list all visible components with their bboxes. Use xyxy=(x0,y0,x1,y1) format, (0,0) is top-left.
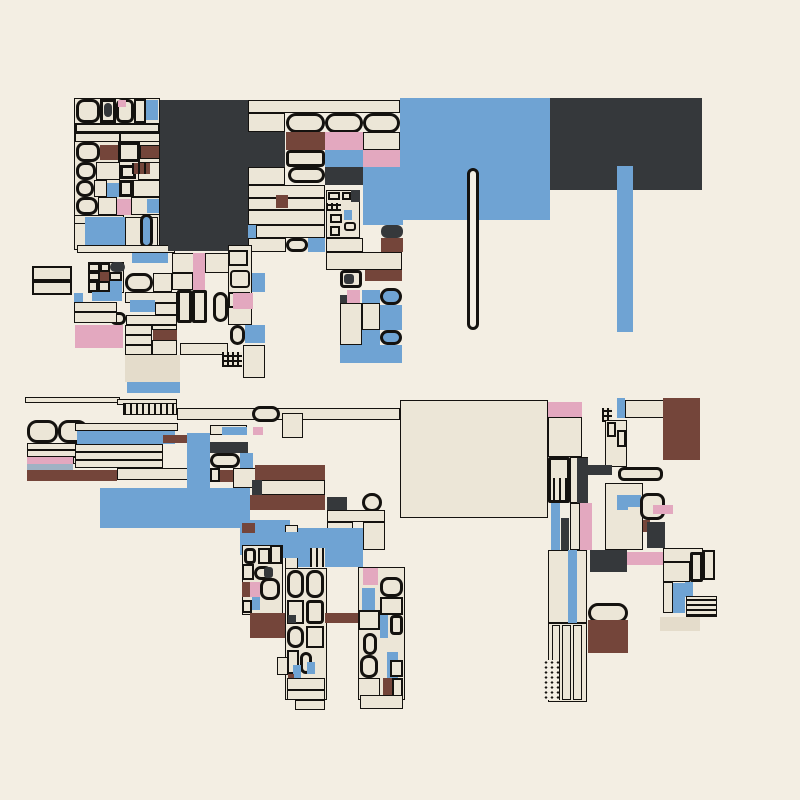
art-shape xyxy=(140,214,153,248)
art-shape xyxy=(248,113,285,132)
art-shape xyxy=(172,273,193,290)
art-shape xyxy=(573,625,582,700)
art-shape xyxy=(553,478,567,500)
art-shape xyxy=(358,610,380,630)
art-shape xyxy=(653,505,673,514)
art-shape xyxy=(94,180,107,197)
art-shape xyxy=(690,552,703,582)
art-shape xyxy=(286,113,325,133)
art-shape xyxy=(32,281,72,295)
art-shape xyxy=(155,303,177,315)
art-shape xyxy=(76,99,100,123)
art-shape xyxy=(340,345,402,363)
art-shape xyxy=(187,450,210,488)
art-shape xyxy=(276,195,288,208)
art-shape xyxy=(125,335,152,345)
art-shape xyxy=(306,626,324,648)
art-shape xyxy=(153,330,177,340)
art-shape xyxy=(548,402,582,417)
art-shape xyxy=(325,613,360,623)
art-shape xyxy=(74,302,117,312)
art-shape xyxy=(180,343,228,355)
art-shape xyxy=(340,303,362,345)
art-shape xyxy=(607,422,616,437)
art-shape xyxy=(248,150,285,167)
caption: Dreaming with Le Corbusier | opF5KtQVSS9… xyxy=(0,730,800,800)
art-shape xyxy=(230,270,250,288)
art-shape xyxy=(134,99,146,123)
art-shape xyxy=(192,290,207,323)
art-shape xyxy=(248,238,286,252)
art-shape xyxy=(673,583,685,613)
art-shape xyxy=(381,238,403,252)
art-shape xyxy=(147,199,159,213)
art-shape xyxy=(360,655,378,678)
art-shape xyxy=(119,180,133,197)
art-shape xyxy=(344,274,354,284)
art-shape xyxy=(132,163,150,174)
art-shape xyxy=(133,180,160,197)
art-shape xyxy=(307,662,315,674)
art-shape xyxy=(381,225,403,238)
art-shape xyxy=(250,613,288,638)
art-shape xyxy=(242,564,254,580)
art-shape xyxy=(168,245,235,251)
art-shape xyxy=(77,245,175,253)
art-shape xyxy=(27,470,117,481)
art-shape xyxy=(233,293,253,309)
art-shape xyxy=(88,272,100,281)
art-shape xyxy=(380,577,403,597)
art-shape xyxy=(380,288,402,305)
art-shape xyxy=(85,217,125,248)
art-shape xyxy=(362,330,380,345)
art-shape xyxy=(75,460,163,468)
art-shape xyxy=(617,398,625,418)
art-shape xyxy=(287,678,325,690)
art-shape xyxy=(363,633,377,655)
art-shape xyxy=(250,582,260,597)
art-shape xyxy=(325,167,363,185)
art-shape xyxy=(125,345,152,355)
art-shape xyxy=(75,452,163,460)
art-shape xyxy=(360,695,403,709)
art-shape xyxy=(344,222,356,231)
art-shape xyxy=(258,548,270,564)
art-shape xyxy=(663,562,690,582)
art-shape xyxy=(252,480,262,495)
art-shape xyxy=(365,270,402,281)
art-shape xyxy=(310,548,325,567)
art-shape xyxy=(76,142,100,162)
art-shape xyxy=(561,518,569,550)
art-shape xyxy=(125,325,152,335)
art-shape xyxy=(75,444,163,452)
art-shape xyxy=(570,503,580,550)
art-shape xyxy=(605,483,643,550)
art-shape xyxy=(210,468,220,482)
art-shape xyxy=(287,570,304,598)
art-shape xyxy=(77,431,175,444)
art-shape xyxy=(270,545,282,564)
art-shape xyxy=(117,199,131,215)
art-shape xyxy=(104,103,112,117)
art-shape xyxy=(98,197,117,215)
art-shape xyxy=(123,403,177,415)
art-shape xyxy=(467,168,479,330)
art-shape xyxy=(264,567,273,578)
art-shape xyxy=(110,262,125,272)
art-shape xyxy=(243,345,265,378)
art-shape xyxy=(647,522,665,548)
art-shape xyxy=(590,550,627,572)
art-shape xyxy=(75,325,123,348)
art-shape xyxy=(252,597,260,610)
art-shape xyxy=(256,225,325,238)
art-shape xyxy=(242,523,255,533)
art-shape xyxy=(325,113,363,133)
art-shape xyxy=(230,325,245,345)
art-shape xyxy=(125,355,180,382)
art-shape xyxy=(27,457,73,464)
art-shape xyxy=(286,132,325,150)
art-shape xyxy=(363,132,400,150)
art-shape xyxy=(160,100,248,248)
art-shape xyxy=(326,238,363,252)
art-shape xyxy=(380,597,403,615)
art-shape xyxy=(308,238,325,252)
art-shape xyxy=(110,281,122,292)
art-shape xyxy=(153,273,172,292)
art-shape xyxy=(118,142,140,162)
art-shape xyxy=(390,660,403,677)
art-shape xyxy=(76,162,96,180)
art-shape xyxy=(306,600,324,624)
art-shape xyxy=(240,453,253,468)
art-shape xyxy=(330,214,342,223)
art-shape xyxy=(260,578,280,600)
art-shape xyxy=(177,290,192,323)
art-shape xyxy=(244,548,256,564)
art-shape xyxy=(252,480,325,495)
art-shape xyxy=(325,132,363,150)
art-shape xyxy=(74,312,117,323)
art-shape xyxy=(25,397,120,403)
art-shape xyxy=(286,238,308,252)
art-shape xyxy=(98,281,110,292)
art-shape xyxy=(326,252,402,270)
artwork-canvas: Dreaming with Le Corbusier | opF5KtQVSS9… xyxy=(0,0,800,800)
art-shape xyxy=(32,266,72,281)
art-shape xyxy=(96,162,120,180)
art-shape xyxy=(362,303,380,330)
art-shape xyxy=(282,413,303,438)
art-shape xyxy=(88,281,98,292)
art-shape xyxy=(248,100,400,113)
art-shape xyxy=(88,263,100,272)
art-shape xyxy=(703,550,715,580)
art-shape xyxy=(255,465,325,480)
art-shape xyxy=(363,167,403,225)
art-shape xyxy=(220,470,233,482)
art-shape xyxy=(75,123,160,133)
art-shape xyxy=(125,273,153,292)
art-shape xyxy=(298,528,363,567)
art-shape xyxy=(306,570,324,598)
art-shape xyxy=(252,273,265,292)
art-shape xyxy=(193,253,205,290)
art-shape xyxy=(363,113,400,133)
art-shape xyxy=(287,690,325,700)
art-shape xyxy=(363,522,385,550)
art-shape xyxy=(627,495,641,507)
art-shape xyxy=(685,582,693,597)
art-shape xyxy=(380,615,388,638)
art-shape xyxy=(248,225,256,238)
art-shape xyxy=(543,660,559,700)
art-shape xyxy=(222,427,247,435)
art-shape xyxy=(347,290,360,303)
art-shape xyxy=(75,133,120,142)
art-shape xyxy=(248,210,325,225)
art-shape xyxy=(344,210,352,220)
art-shape xyxy=(625,400,667,418)
art-shape xyxy=(213,292,228,322)
art-shape xyxy=(100,272,109,281)
art-shape xyxy=(362,588,375,610)
art-shape xyxy=(588,620,628,653)
art-shape xyxy=(248,167,285,185)
art-shape xyxy=(118,100,126,107)
art-shape xyxy=(74,293,83,302)
art-shape xyxy=(663,398,700,460)
art-shape xyxy=(325,150,363,167)
art-shape xyxy=(27,420,58,443)
art-shape xyxy=(187,433,210,450)
art-shape xyxy=(363,568,378,585)
art-shape xyxy=(75,423,178,431)
art-shape xyxy=(132,253,168,263)
art-shape xyxy=(287,626,304,648)
art-shape xyxy=(363,150,400,167)
art-shape xyxy=(400,400,548,518)
art-shape xyxy=(120,133,160,142)
art-shape xyxy=(618,467,663,481)
art-shape xyxy=(380,330,402,345)
art-shape xyxy=(146,100,158,120)
art-shape xyxy=(380,305,402,330)
art-shape xyxy=(663,582,673,613)
art-shape xyxy=(617,430,626,447)
art-shape xyxy=(210,453,240,468)
art-shape xyxy=(222,352,242,367)
art-shape xyxy=(107,183,119,197)
art-shape xyxy=(362,290,380,303)
art-shape xyxy=(342,192,351,200)
art-shape xyxy=(295,700,325,710)
art-shape xyxy=(250,495,325,510)
art-shape xyxy=(92,292,122,301)
art-shape xyxy=(130,300,155,312)
art-shape xyxy=(253,427,263,435)
art-shape xyxy=(100,263,110,272)
art-shape xyxy=(152,340,177,355)
art-shape xyxy=(245,325,265,343)
art-shape xyxy=(126,315,177,325)
art-shape xyxy=(326,203,341,211)
art-shape xyxy=(286,150,325,167)
art-shape xyxy=(330,226,340,236)
art-shape xyxy=(288,615,296,623)
art-shape xyxy=(580,503,592,550)
art-shape xyxy=(100,145,118,160)
art-shape xyxy=(252,406,280,422)
art-shape xyxy=(617,166,633,332)
art-shape xyxy=(551,503,560,550)
art-shape xyxy=(76,180,94,197)
art-shape xyxy=(109,272,122,281)
art-shape xyxy=(327,510,385,522)
art-shape xyxy=(548,417,582,457)
art-shape xyxy=(127,382,180,393)
art-shape xyxy=(293,665,301,678)
art-shape xyxy=(288,167,325,183)
art-shape xyxy=(248,132,285,150)
art-shape xyxy=(228,250,248,266)
art-shape xyxy=(140,145,160,159)
art-shape xyxy=(686,596,717,617)
art-shape xyxy=(117,468,193,480)
art-shape xyxy=(242,582,250,597)
generative-composition xyxy=(0,0,800,800)
art-shape xyxy=(242,600,252,613)
art-shape xyxy=(587,465,612,475)
art-shape xyxy=(100,488,250,528)
art-shape xyxy=(568,550,577,623)
art-shape xyxy=(76,197,98,215)
art-shape xyxy=(210,442,248,453)
art-shape xyxy=(660,617,700,631)
art-shape xyxy=(351,190,360,202)
art-shape xyxy=(390,615,403,635)
art-shape xyxy=(562,625,571,700)
art-shape xyxy=(328,192,340,200)
art-shape xyxy=(577,458,588,503)
